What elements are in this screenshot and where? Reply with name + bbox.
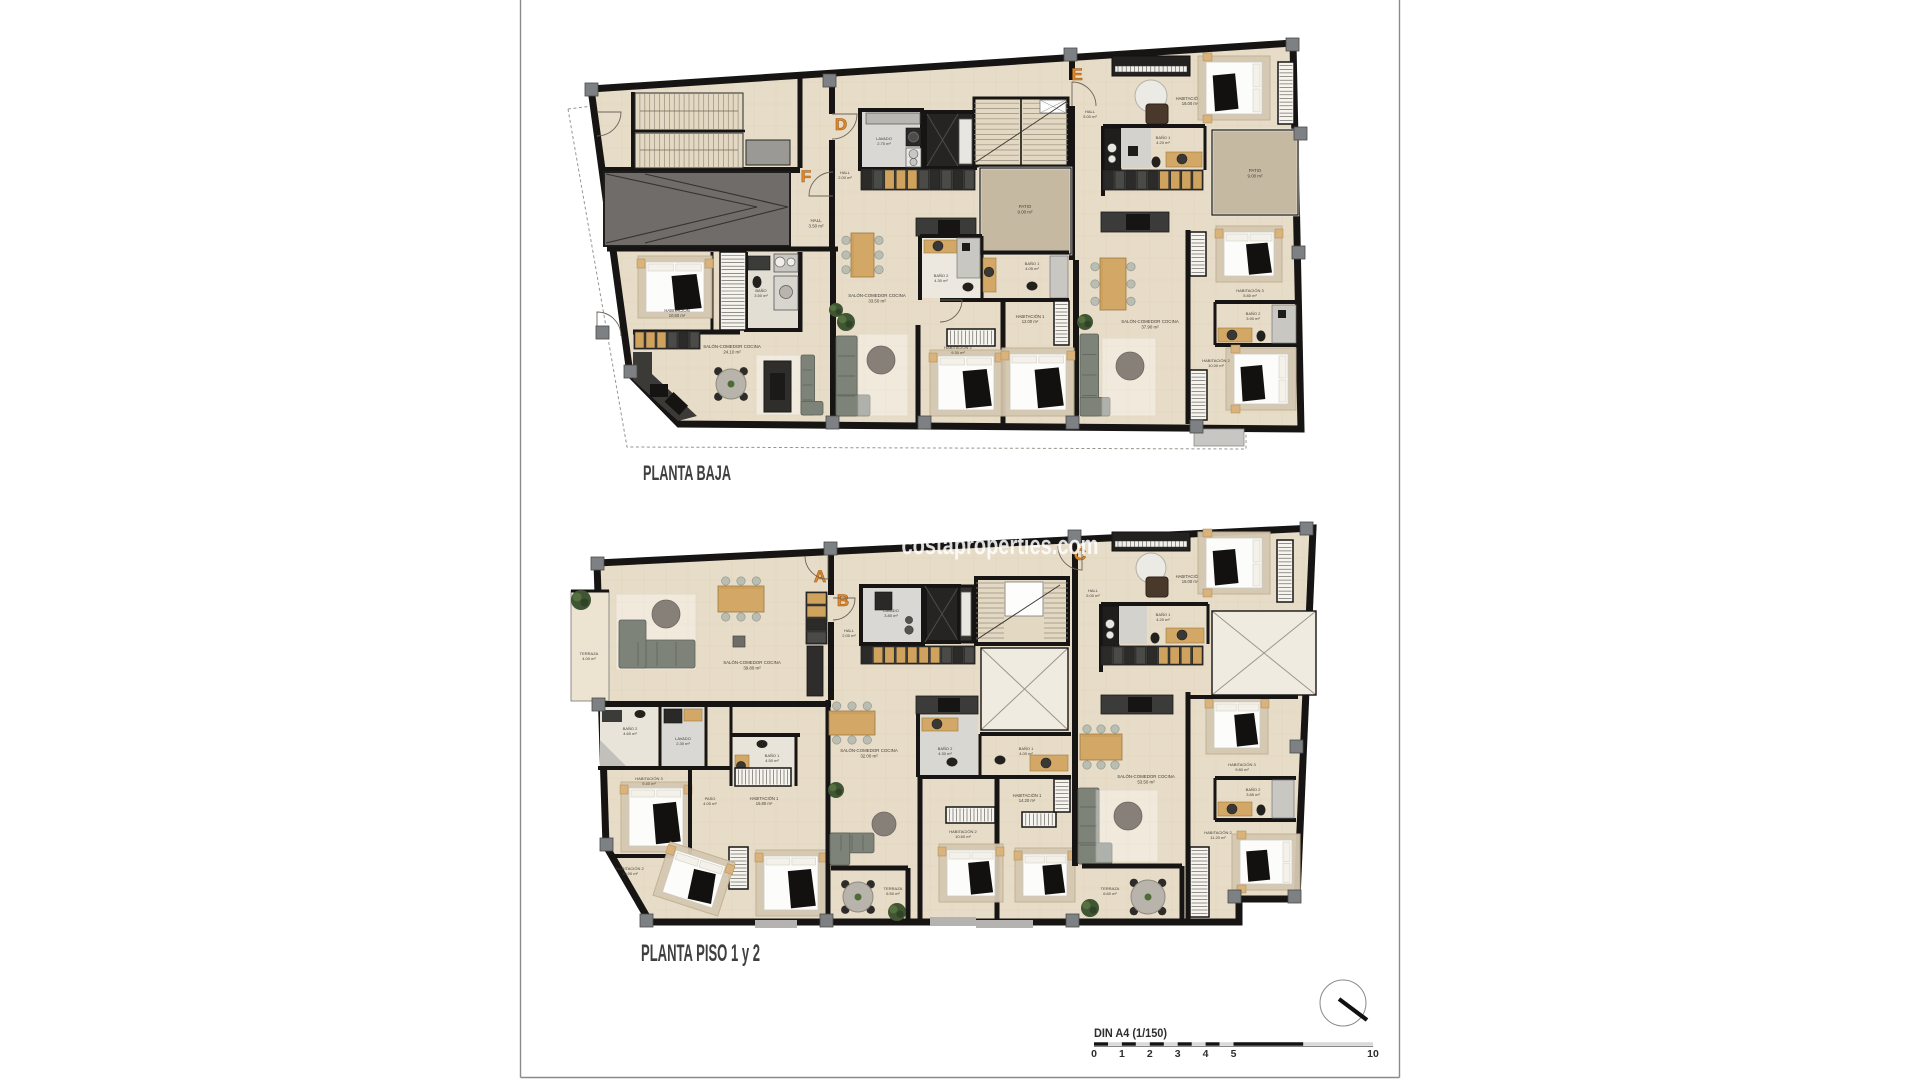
svg-text:F: F <box>801 167 811 186</box>
svg-text:PLANTA BAJA: PLANTA BAJA <box>643 462 731 485</box>
svg-text:PATIO: PATIO <box>1019 204 1032 209</box>
svg-text:3.80 m²: 3.80 m² <box>884 613 898 618</box>
svg-text:4.20 m²: 4.20 m² <box>1156 617 1170 622</box>
svg-text:4.60 m²: 4.60 m² <box>623 731 637 736</box>
svg-text:9.30 m²: 9.30 m² <box>951 350 965 355</box>
svg-text:SALÓN-COMEDOR COCINA: SALÓN-COMEDOR COCINA <box>848 293 906 298</box>
svg-text:53.50 m²: 53.50 m² <box>1137 779 1155 784</box>
svg-text:PLANTA PISO 1 y 2: PLANTA PISO 1 y 2 <box>641 940 760 967</box>
svg-text:4.30 m²: 4.30 m² <box>938 751 952 756</box>
svg-text:15.80 m²: 15.80 m² <box>756 801 773 806</box>
svg-text:12.00 m²: 12.00 m² <box>1022 319 1039 324</box>
svg-text:SALÓN-COMEDOR COCINA: SALÓN-COMEDOR COCINA <box>840 748 898 753</box>
svg-text:3: 3 <box>1175 1048 1181 1060</box>
svg-text:6.60 m²: 6.60 m² <box>1103 891 1117 896</box>
svg-text:9.40 m²: 9.40 m² <box>642 781 656 786</box>
svg-text:B: B <box>837 591 849 610</box>
svg-text:HALL: HALL <box>811 218 823 223</box>
svg-text:2.00 m²: 2.00 m² <box>838 175 852 180</box>
svg-text:11.20 m²: 11.20 m² <box>1210 835 1226 840</box>
svg-text:DIN A4 (1/150): DIN A4 (1/150) <box>1094 1026 1167 1040</box>
svg-text:16.00 m²: 16.00 m² <box>1182 101 1199 106</box>
svg-text:16.00 m²: 16.00 m² <box>1182 579 1199 584</box>
svg-text:SALÓN-COMEDOR COCINA: SALÓN-COMEDOR COCINA <box>1121 319 1179 324</box>
svg-text:5.00 m²: 5.00 m² <box>1083 114 1097 119</box>
svg-text:4.05 m²: 4.05 m² <box>1025 266 1039 271</box>
svg-text:33.50 m²: 33.50 m² <box>868 298 886 303</box>
svg-text:5.00 m²: 5.00 m² <box>1086 593 1100 598</box>
svg-text:39.80 m²: 39.80 m² <box>743 665 761 670</box>
svg-text:9.80 m²: 9.80 m² <box>1235 767 1249 772</box>
svg-text:4.00 m²: 4.00 m² <box>1019 751 1033 756</box>
svg-text:D: D <box>835 115 847 134</box>
svg-text:4.20 m²: 4.20 m² <box>1156 140 1170 145</box>
svg-text:costaproperties.com: costaproperties.com <box>902 530 1099 560</box>
svg-text:A: A <box>814 567 826 586</box>
svg-text:9.00 m²: 9.00 m² <box>1018 209 1033 214</box>
svg-text:4.30 m²: 4.30 m² <box>934 278 948 283</box>
svg-text:32.00 m²: 32.00 m² <box>860 753 878 758</box>
svg-text:2.30 m²: 2.30 m² <box>676 741 690 746</box>
svg-text:3.85 m²: 3.85 m² <box>1246 792 1260 797</box>
svg-text:4.00 m²: 4.00 m² <box>703 801 717 806</box>
svg-text:1: 1 <box>1119 1048 1125 1060</box>
svg-text:SALÓN-COMEDOR COCINA: SALÓN-COMEDOR COCINA <box>723 660 781 665</box>
svg-text:2.00 m²: 2.00 m² <box>842 633 856 638</box>
svg-text:2: 2 <box>1147 1048 1153 1060</box>
svg-text:E: E <box>1071 65 1082 84</box>
svg-text:10.00 m²: 10.00 m² <box>622 871 638 876</box>
svg-text:PATIO: PATIO <box>1249 168 1262 173</box>
svg-text:SALÓN-COMEDOR COCINA: SALÓN-COMEDOR COCINA <box>703 344 761 349</box>
svg-text:5.80 m²: 5.80 m² <box>1243 293 1257 298</box>
svg-text:5: 5 <box>1231 1048 1237 1060</box>
svg-text:3.90 m²: 3.90 m² <box>1246 316 1260 321</box>
svg-text:4: 4 <box>1203 1048 1209 1060</box>
svg-text:10.60 m²: 10.60 m² <box>669 313 686 318</box>
svg-text:6.50 m²: 6.50 m² <box>886 891 900 896</box>
svg-text:0: 0 <box>1091 1048 1097 1060</box>
svg-text:10: 10 <box>1367 1048 1379 1060</box>
svg-text:9.00 m²: 9.00 m² <box>1248 173 1263 178</box>
svg-text:3.50 m²: 3.50 m² <box>754 293 768 298</box>
svg-text:4.00 m²: 4.00 m² <box>582 656 596 661</box>
svg-text:14.20 m²: 14.20 m² <box>1019 798 1036 803</box>
svg-text:4.50 m²: 4.50 m² <box>765 758 779 763</box>
svg-text:10.60 m²: 10.60 m² <box>955 834 971 839</box>
svg-text:24.10 m²: 24.10 m² <box>723 349 741 354</box>
svg-text:SALÓN-COMEDOR COCINA: SALÓN-COMEDOR COCINA <box>1117 774 1175 779</box>
svg-text:3.50 m²: 3.50 m² <box>809 223 824 228</box>
svg-text:2.75 m²: 2.75 m² <box>877 141 891 146</box>
svg-text:37.90 m²: 37.90 m² <box>1141 324 1159 329</box>
svg-text:10.00 m²: 10.00 m² <box>1208 363 1224 368</box>
